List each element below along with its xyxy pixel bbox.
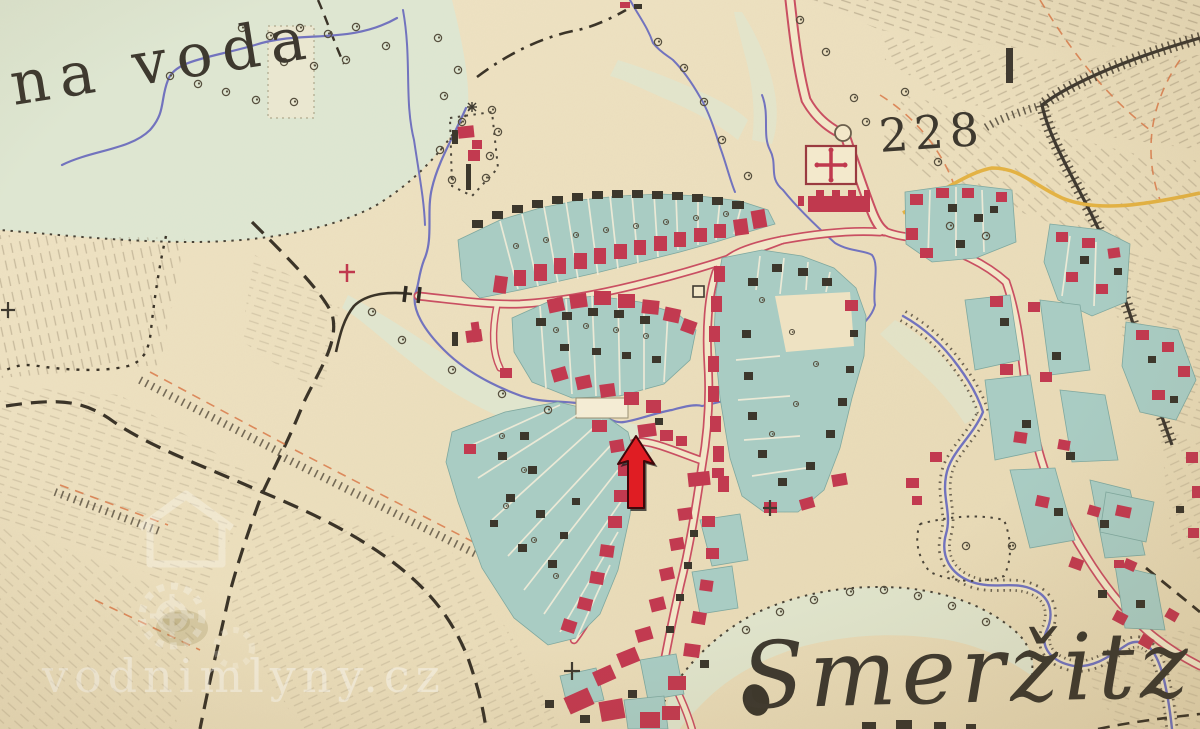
historical-map-canvas: na voda 228 Smeržitz vodnimlyny.cz (0, 0, 1200, 729)
vignette-overlay (0, 0, 1200, 729)
